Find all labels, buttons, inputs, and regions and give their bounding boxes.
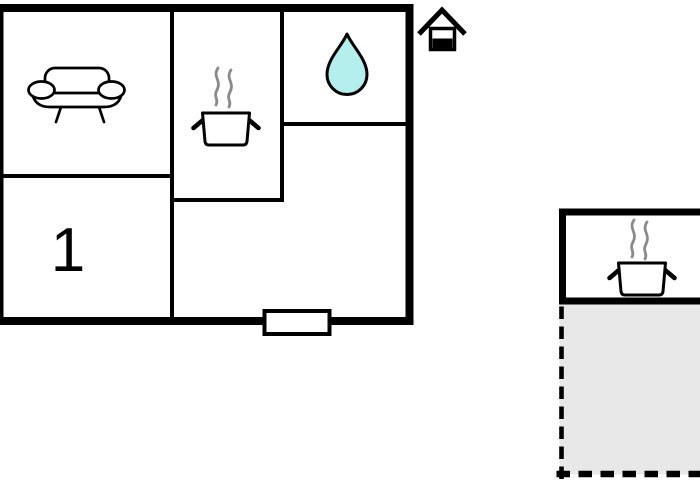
- pot-body: [619, 263, 666, 295]
- pot-body: [203, 113, 250, 145]
- entrance-door-symbol: [265, 311, 330, 334]
- sofa-armrest-left: [29, 82, 55, 99]
- bedroom-number-label: 1: [51, 216, 85, 285]
- sofa-armrest-right: [99, 82, 125, 99]
- floor-plan-canvas: 1: [0, 0, 700, 481]
- main-building: 1: [0, 8, 410, 334]
- house-base-fill: [433, 39, 453, 50]
- terrace-fill: [560, 305, 700, 475]
- annex-building: [563, 212, 700, 301]
- terrace-area: [557, 305, 700, 481]
- house-icon: [419, 10, 465, 50]
- floor-plan: 1: [0, 0, 700, 481]
